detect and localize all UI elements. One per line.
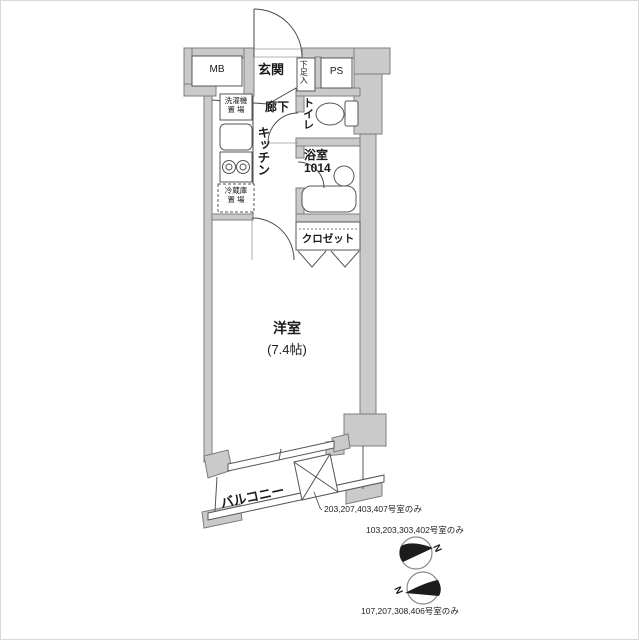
mb-label: MB [192, 64, 242, 76]
main-room-label-line1: 洋室 [237, 320, 337, 336]
compass2-note: 107,207,308,406号室のみ [361, 607, 459, 617]
room-door-arc [252, 218, 294, 260]
bathtub-icon [302, 186, 356, 212]
north-compass-1 [399, 537, 433, 569]
hatch-note: 203,207,403,407号室のみ [324, 505, 422, 515]
ps-label: PS [321, 66, 352, 78]
fridge-label-line2: 置 場 [218, 196, 254, 205]
compass1-note: 103,203,303,402号室のみ [366, 526, 464, 536]
floor-plan: MB 玄関 下足入 PS 廊下 トイレ 洗濯機 置 場 キッチン 浴室 1014… [0, 0, 639, 640]
bath-basin-icon [334, 166, 354, 186]
toilet-icon [316, 101, 358, 126]
kitchen-sink-icon [220, 124, 252, 150]
closet-label: クロゼット [296, 233, 360, 245]
stove-icon [220, 152, 252, 182]
toilet-label: トイレ [301, 97, 314, 139]
genkan-label: 玄関 [248, 63, 294, 78]
closet-folding-doors [298, 251, 359, 267]
main-room-label-line2: (7.4帖) [237, 343, 337, 358]
shoe-box-label: 下足入 [299, 60, 308, 91]
balcony-left-edge [215, 477, 217, 511]
washer-label-line2: 置 場 [220, 106, 252, 115]
escape-hatch-icon [294, 454, 338, 500]
entrance-door-arc [254, 9, 302, 57]
north-compass-2 [405, 572, 441, 604]
kitchen-label: キッチン [255, 126, 269, 210]
toilet-door-arc [268, 113, 298, 143]
bath-label-line2: 1014 [304, 162, 331, 176]
hall-label: 廊下 [256, 101, 298, 115]
